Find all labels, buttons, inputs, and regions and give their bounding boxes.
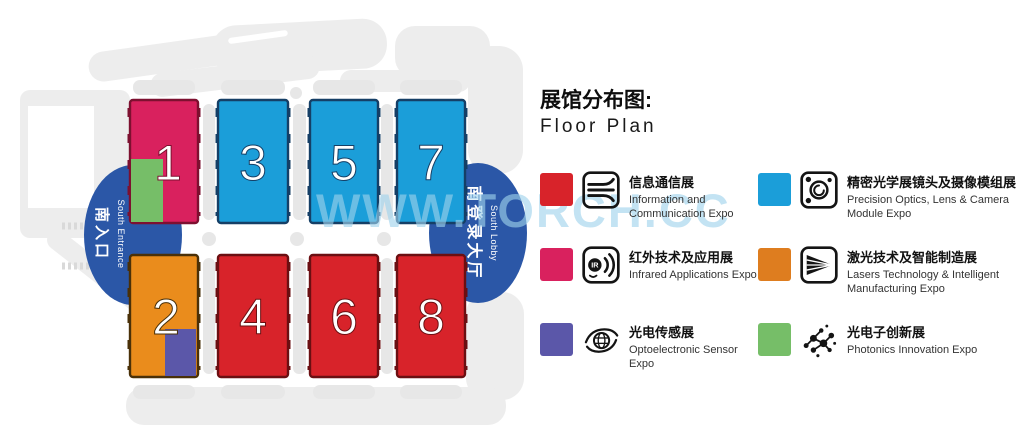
hall-8: 8	[397, 255, 465, 377]
legend-grid: 信息通信展 Information and Communication Expo	[540, 171, 1018, 371]
hall-5: 5	[310, 100, 378, 223]
color-swatch	[540, 173, 573, 206]
color-swatch	[540, 323, 573, 356]
legend-item-precision-optics: 精密光学展镜头及摄像模组展 Precision Optics, Lens & C…	[758, 171, 1018, 221]
legend-item-photonics-innovation: 光电子创新展 Photonics Innovation Expo	[758, 321, 1018, 371]
floor-plan-map: South Entrance 南入口 South Lobby 南登录大厅 1 3	[0, 0, 530, 431]
laser-icon	[800, 246, 838, 284]
hall-7-number: 7	[417, 135, 445, 191]
page-title-en: Floor Plan	[540, 116, 1018, 138]
color-swatch	[758, 323, 791, 356]
hall-6: 6	[310, 255, 378, 377]
hall-2: 2	[130, 255, 198, 377]
camera-module-icon	[800, 171, 838, 209]
hall-8-number: 8	[417, 289, 445, 345]
hall-6-number: 6	[330, 289, 358, 345]
legend-label-zh: 信息通信展	[629, 172, 758, 191]
south-entrance-label-en: South Entrance	[116, 199, 126, 268]
south-entrance-label-zh: 南入口	[93, 207, 111, 261]
legend-label-zh: 光电传感展	[629, 322, 758, 341]
legend-label-en: Information and Communication Expo	[629, 193, 758, 221]
page-title-zh: 展馆分布图:	[540, 84, 1018, 114]
legend-label-en: Infrared Applications Expo	[629, 268, 757, 282]
floor-plan-poster: South Entrance 南入口 South Lobby 南登录大厅 1 3	[0, 0, 1024, 431]
hall-5-number: 5	[330, 135, 358, 191]
hall-4: 4	[218, 255, 288, 377]
infrared-icon: IR	[582, 246, 620, 284]
legend-label-en: Optoelectronic Sensor Expo	[629, 343, 758, 371]
color-swatch	[540, 248, 573, 281]
hall-3: 3	[218, 100, 288, 223]
hall-1: 1	[130, 100, 198, 223]
south-lobby-label-en: South Lobby	[489, 205, 499, 261]
hall-3-number: 3	[239, 135, 267, 191]
legend-label-zh: 激光技术及智能制造展	[847, 247, 1018, 266]
south-lobby-label-zh: 南登录大厅	[465, 185, 484, 280]
legend-item-information-communication: 信息通信展 Information and Communication Expo	[540, 171, 758, 221]
communication-icon	[582, 171, 620, 209]
legend-label-zh: 精密光学展镜头及摄像模组展	[847, 172, 1018, 191]
hall-1-number: 1	[154, 135, 182, 191]
legend-item-laser: 激光技术及智能制造展 Lasers Technology & Intellige…	[758, 246, 1018, 296]
legend-label-en: Lasers Technology & Intelligent Manufact…	[847, 268, 1018, 296]
photonics-icon	[800, 321, 838, 359]
legend-label-en: Photonics Innovation Expo	[847, 343, 977, 357]
legend-item-optoelectronic-sensor: 光电传感展 Optoelectronic Sensor Expo	[540, 321, 758, 371]
color-swatch	[758, 173, 791, 206]
hall-4-number: 4	[239, 289, 267, 345]
hall-2-number: 2	[152, 289, 180, 345]
legend-item-infrared: IR 红外技术及应用展 Infrared Applications Expo	[540, 246, 758, 296]
legend-label-en: Precision Optics, Lens & Camera Module E…	[847, 193, 1018, 221]
ir-icon-text: IR	[591, 261, 599, 270]
sensor-eye-icon	[582, 321, 620, 359]
hall-7: 7	[397, 100, 465, 223]
legend-label-zh: 红外技术及应用展	[629, 247, 757, 266]
legend-label-zh: 光电子创新展	[847, 322, 977, 341]
color-swatch	[758, 248, 791, 281]
legend-panel: 展馆分布图: Floor Plan 信息通信展	[540, 84, 1018, 371]
